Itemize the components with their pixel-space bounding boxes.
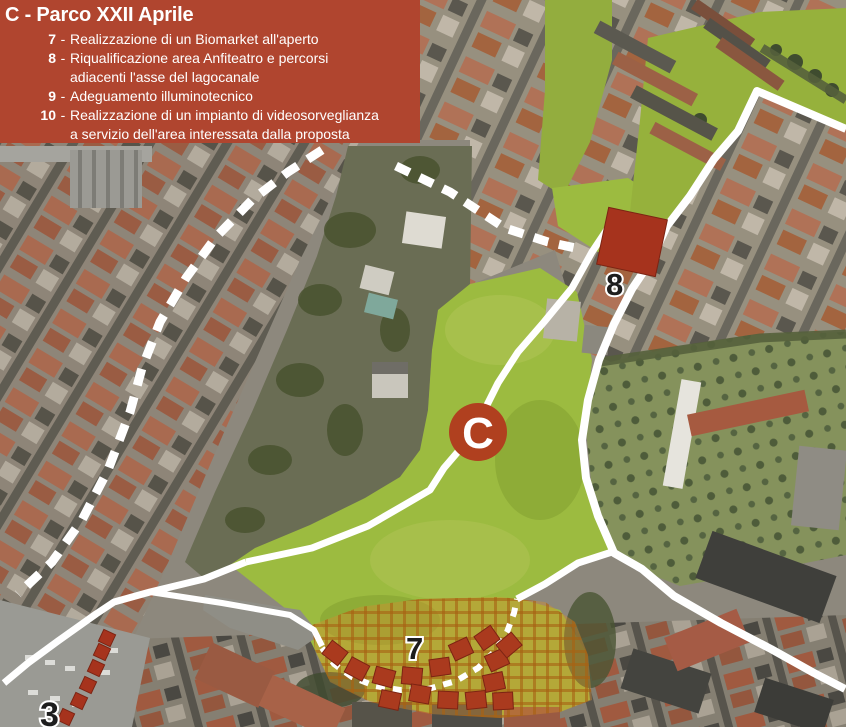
marker-8-label: 8	[606, 267, 623, 302]
legend-item-7: 7 - Realizzazione di un Biomarket all'ap…	[0, 30, 420, 49]
area-c-label: C	[462, 409, 494, 458]
legend-item-separator: -	[56, 30, 70, 49]
legend-item-text: Riqualificazione area Anfiteatro e perco…	[70, 49, 420, 87]
legend-item-number: 10	[0, 106, 56, 143]
legend-item-text: Realizzazione di un Biomarket all'aperto	[70, 30, 420, 49]
stall	[378, 690, 401, 711]
legend-item-number: 9	[0, 87, 56, 106]
stall	[482, 672, 505, 693]
stall	[465, 691, 487, 710]
legend-item-text: Realizzazione di un impianto di videosor…	[70, 106, 420, 143]
stall	[493, 692, 514, 710]
legend-item-separator: -	[56, 87, 70, 106]
legend-panel: C - Parco XXII Aprile 7 - Realizzazione …	[0, 0, 420, 143]
legend-item-9: 9 - Adeguamento illuminotecnico	[0, 87, 420, 106]
plan-map-screenshot: C 8 7 3 C - Parco XXII Aprile 7 - Realiz…	[0, 0, 846, 727]
stall	[401, 667, 422, 686]
legend-item-number: 8	[0, 49, 56, 87]
legend-item-8: 8 - Riqualificazione area Anfiteatro e p…	[0, 49, 420, 87]
legend-item-number: 7	[0, 30, 56, 49]
legend-item-separator: -	[56, 106, 70, 143]
stall	[429, 657, 451, 677]
warehouse-roof	[70, 150, 142, 208]
stall	[438, 691, 459, 709]
legend-item-separator: -	[56, 49, 70, 87]
stall	[409, 684, 432, 704]
marker-7-label: 7	[406, 631, 423, 666]
legend-item-text: Adeguamento illuminotecnico	[70, 87, 420, 106]
legend-item-10: 10 - Realizzazione di un impianto di vid…	[0, 106, 420, 143]
marker-3-label: 3	[40, 696, 59, 727]
area-c-badge: C	[449, 403, 507, 461]
legend-title: C - Parco XXII Aprile	[5, 4, 420, 27]
